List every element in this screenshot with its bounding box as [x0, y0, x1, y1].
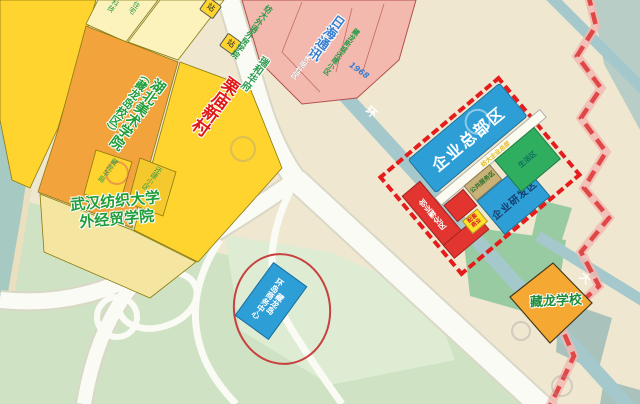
- planning-map: 企业总部区 纺大企业总部 创业孵化区 配套商业 公共服务区 企业研发区 生活区 …: [0, 0, 640, 404]
- retail-label: 配套商业: [467, 213, 483, 229]
- living-label: 生活区: [516, 149, 539, 170]
